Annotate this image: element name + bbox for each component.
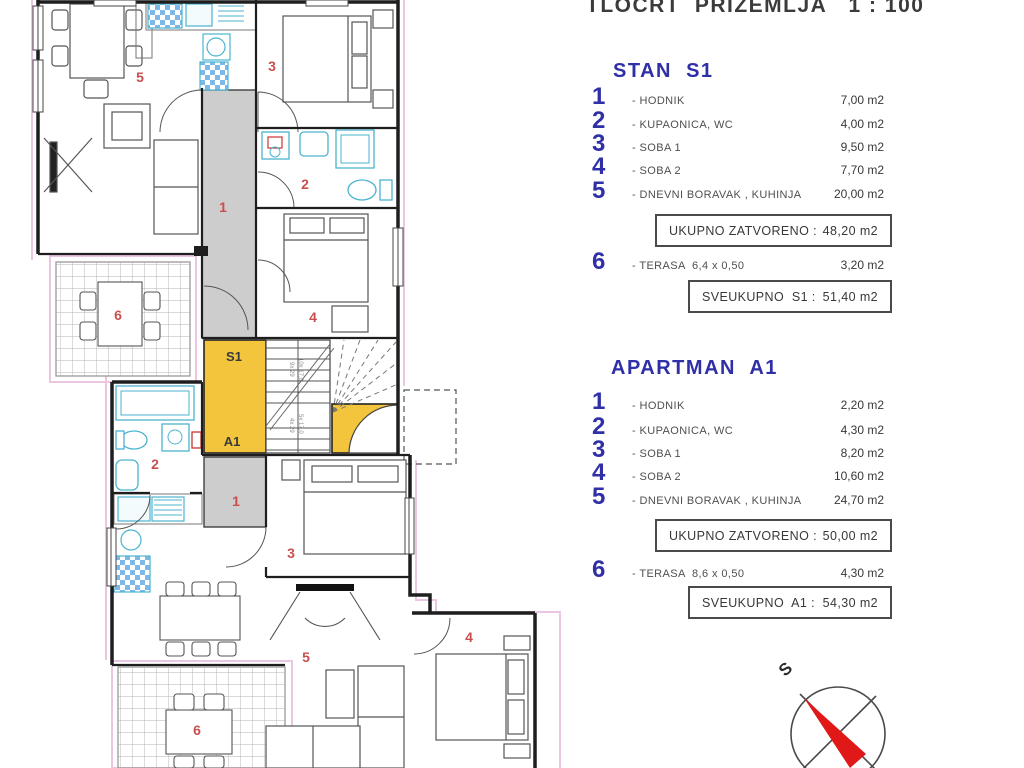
landing-label-s1: S1 (226, 349, 242, 364)
heading-apartman-a1: APARTMAN A1 (611, 357, 778, 380)
box-label: UKUPNO ZATVORENO : (669, 529, 817, 543)
compass-needle (804, 698, 866, 768)
total-closed-box-s1: UKUPNO ZATVORENO : 48,20 m2 (655, 214, 892, 247)
row-number: 5 (585, 179, 632, 203)
floor-plan-drawing: 5 3 2 4 1 6 2 1 3 5 6 4 S1 A1 9x 29 10x … (0, 0, 570, 768)
compass-rose: S (770, 648, 940, 768)
row-number: 1 (585, 85, 632, 109)
box-label: SVEUKUPNO A1 : (702, 596, 815, 610)
legend-row: 5 - DNEVNI BORAVAK , KUHINJA 20,00 m2 (585, 179, 884, 203)
row-label: - SOBA 2 (632, 165, 804, 177)
row-label: - SOBA 1 (632, 448, 804, 460)
row-value: 9,50 m2 (804, 140, 884, 154)
room-label-a1-3: 3 (287, 545, 295, 561)
room-label-s1-3: 3 (268, 58, 276, 74)
legend-row: 2 - KUPAONICA, WC 4,00 m2 (585, 109, 884, 133)
row-label: - HODNIK (632, 400, 804, 412)
grand-total-box-a1: SVEUKUPNO A1 : 54,30 m2 (688, 586, 892, 619)
floor-plan-page: 5 3 2 4 1 6 2 1 3 5 6 4 S1 A1 9x 29 10x … (0, 0, 1024, 768)
room-label-s1-1: 1 (219, 199, 227, 215)
row-label: - DNEVNI BORAVAK , KUHINJA (632, 495, 804, 507)
bed-a1-soba2 (436, 636, 530, 758)
legend-row: 1 - HODNIK 7,00 m2 (585, 85, 884, 109)
room-label-s1-5: 5 (136, 69, 144, 85)
room-label-a1-2: 2 (151, 456, 159, 472)
row-value: 3,20 m2 (804, 258, 884, 272)
corridor-s1 (202, 90, 256, 338)
box-value: 54,30 m2 (823, 596, 878, 610)
stair-note-upper-a: 9x 29 (288, 362, 294, 377)
landing-label-a1: A1 (224, 434, 241, 449)
legend-row: 2 - KUPAONICA, WC 4,30 m2 (585, 415, 884, 439)
row-label: - SOBA 2 (632, 471, 804, 483)
legend-row-terrace: 6 - TERASA 6,4 x 0,50 3,20 m2 (585, 250, 884, 274)
legend-row: 3 - SOBA 1 9,50 m2 (585, 132, 884, 156)
legend-row-terrace: 6 - TERASA 8,6 x 0,50 4,30 m2 (585, 558, 884, 582)
legend-row: 1 - HODNIK 2,20 m2 (585, 390, 884, 414)
room-label-a1-1: 1 (232, 493, 240, 509)
room-label-a1-4: 4 (465, 629, 473, 645)
row-number: 4 (585, 155, 632, 179)
box-value: 50,00 m2 (823, 529, 878, 543)
row-value: 4,30 m2 (804, 566, 884, 580)
page-title: TLOCRT PRIZEMLJA 1 : 100 (586, 0, 924, 18)
row-value: 4,00 m2 (804, 117, 884, 131)
row-label: - KUPAONICA, WC (632, 119, 804, 131)
box-value: 48,20 m2 (823, 224, 878, 238)
room-label-a1-6: 6 (193, 722, 201, 738)
room-label-s1-6: 6 (114, 307, 122, 323)
row-value: 8,20 m2 (804, 446, 884, 460)
row-label: - TERASA 8,6 x 0,50 (632, 568, 804, 580)
dining-set-a1 (160, 582, 240, 656)
stair-note-lower-a: 4x 29 (288, 418, 294, 433)
grand-total-box-s1: SVEUKUPNO S1 : 51,40 m2 (688, 280, 892, 313)
heading-stan-s1: STAN S1 (613, 60, 714, 83)
row-label: - SOBA 1 (632, 142, 804, 154)
row-value: 20,00 m2 (804, 187, 884, 201)
room-label-s1-2: 2 (301, 176, 309, 192)
row-label: - TERASA 6,4 x 0,50 (632, 260, 804, 272)
corridor-a1 (204, 457, 266, 527)
legend-row: 3 - SOBA 1 8,20 m2 (585, 438, 884, 462)
stair-note-upper-b: 10x 17,0 (297, 358, 303, 382)
room-label-a1-5: 5 (302, 649, 310, 665)
total-closed-box-a1: UKUPNO ZATVORENO : 50,00 m2 (655, 519, 892, 552)
row-value: 7,00 m2 (804, 93, 884, 107)
legend-row: 4 - SOBA 2 7,70 m2 (585, 155, 884, 179)
row-value: 4,30 m2 (804, 423, 884, 437)
legend-row: 5 - DNEVNI BORAVAK , KUHINJA 24,70 m2 (585, 485, 884, 509)
row-value: 2,20 m2 (804, 398, 884, 412)
stair-note-lower-b: 5x 17,0 (297, 414, 303, 434)
box-label: SVEUKUPNO S1 : (702, 290, 816, 304)
row-number: 6 (585, 250, 632, 274)
row-value: 7,70 m2 (804, 163, 884, 177)
row-number: 1 (585, 390, 632, 414)
row-label: - HODNIK (632, 95, 804, 107)
box-label: UKUPNO ZATVORENO : (669, 224, 817, 238)
box-value: 51,40 m2 (823, 290, 878, 304)
row-value: 10,60 m2 (804, 469, 884, 483)
wall-pier (194, 246, 208, 256)
legend-row: 4 - SOBA 2 10,60 m2 (585, 461, 884, 485)
row-number: 4 (585, 461, 632, 485)
row-number: 6 (585, 558, 632, 582)
row-value: 24,70 m2 (804, 493, 884, 507)
row-number: 5 (585, 485, 632, 509)
compass-north-label: S (775, 658, 796, 680)
room-label-s1-4: 4 (309, 309, 317, 325)
row-label: - DNEVNI BORAVAK , KUHINJA (632, 189, 804, 201)
row-label: - KUPAONICA, WC (632, 425, 804, 437)
